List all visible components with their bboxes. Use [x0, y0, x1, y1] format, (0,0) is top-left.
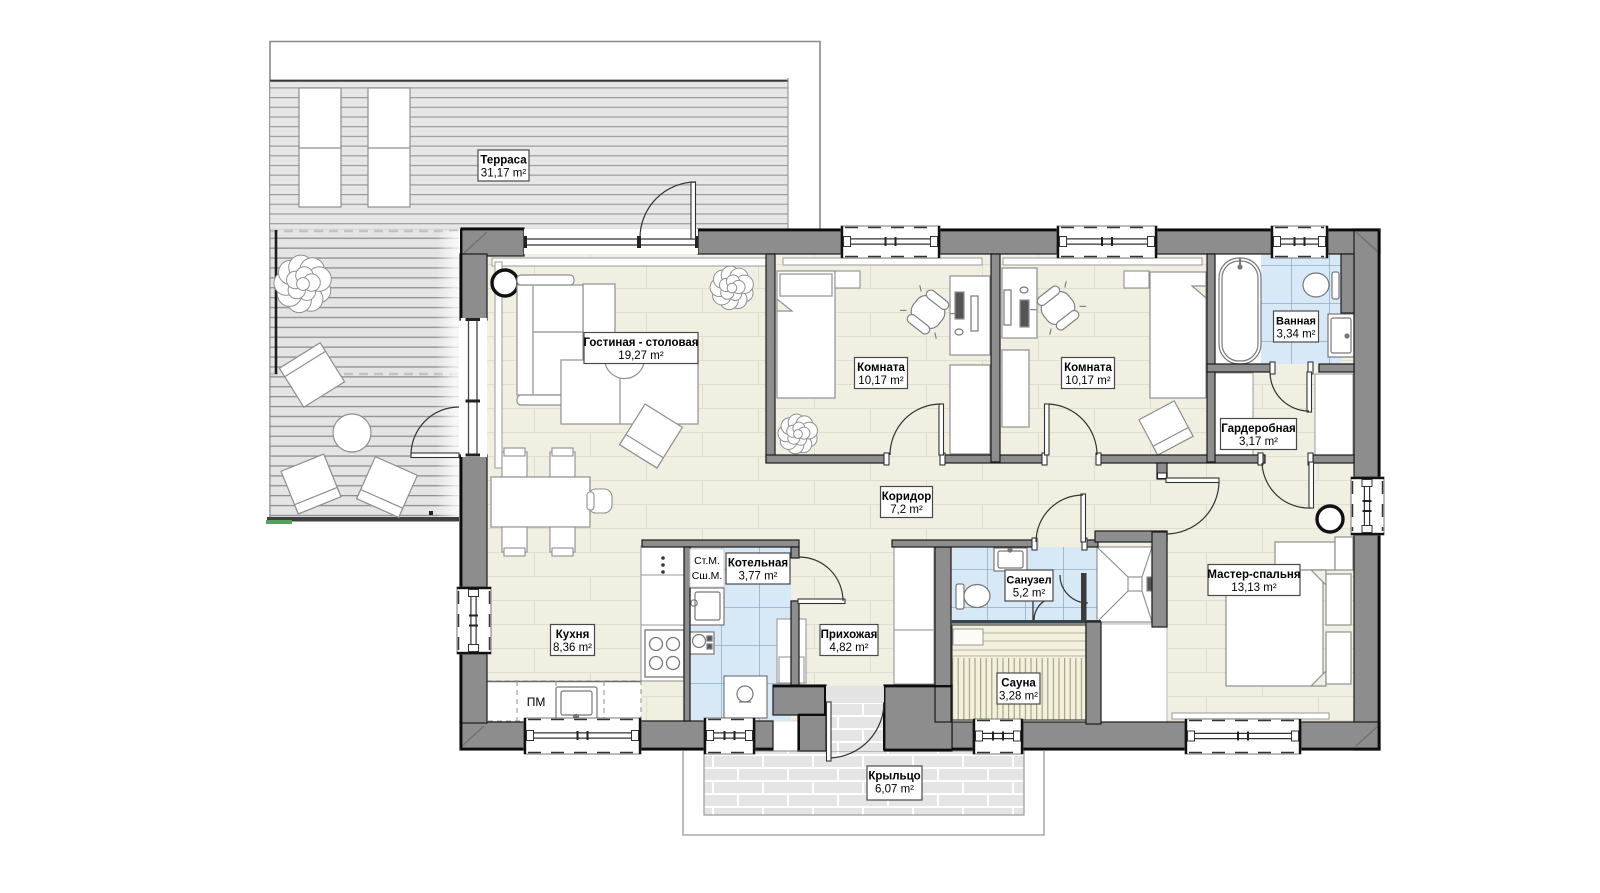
- svg-text:3,77 m²: 3,77 m²: [739, 571, 778, 583]
- svg-text:31,17 m²: 31,17 m²: [481, 168, 527, 180]
- svg-text:Гардеробная: Гардеробная: [1221, 423, 1295, 435]
- svg-text:Кухня: Кухня: [556, 629, 590, 641]
- svg-text:Сш.М.: Сш.М.: [692, 570, 723, 582]
- svg-text:19,27 m²: 19,27 m²: [618, 350, 664, 362]
- svg-text:4,82 m²: 4,82 m²: [830, 642, 869, 654]
- svg-text:13,13 m²: 13,13 m²: [1231, 582, 1277, 594]
- svg-text:Крыльцо: Крыльцо: [868, 771, 920, 783]
- svg-text:5,2 m²: 5,2 m²: [1013, 588, 1046, 600]
- svg-text:Гостиная - столовая: Гостиная - столовая: [583, 337, 698, 349]
- svg-text:6,07 m²: 6,07 m²: [875, 784, 914, 796]
- svg-text:3,34 m²: 3,34 m²: [1277, 329, 1316, 341]
- svg-text:10,17 m²: 10,17 m²: [858, 375, 904, 387]
- svg-text:8,36 m²: 8,36 m²: [553, 642, 592, 654]
- svg-text:Сауна: Сауна: [1001, 678, 1036, 690]
- svg-text:ПМ: ПМ: [527, 695, 546, 709]
- svg-text:Котельная: Котельная: [728, 558, 788, 570]
- svg-text:Коридор: Коридор: [882, 491, 932, 503]
- svg-text:3,17 m²: 3,17 m²: [1239, 436, 1278, 448]
- svg-text:Санузел: Санузел: [1006, 575, 1051, 587]
- svg-text:Ст.М.: Ст.М.: [694, 555, 720, 567]
- svg-text:Прихожая: Прихожая: [821, 629, 878, 641]
- svg-text:Мастер-спальня: Мастер-спальня: [1207, 569, 1300, 581]
- svg-text:Терраса: Терраса: [480, 155, 527, 167]
- svg-text:Комната: Комната: [857, 362, 905, 374]
- svg-text:Ванная: Ванная: [1276, 316, 1316, 328]
- svg-text:7,2 m²: 7,2 m²: [890, 504, 923, 516]
- svg-text:Комната: Комната: [1064, 362, 1112, 374]
- svg-text:3,28 m²: 3,28 m²: [999, 691, 1038, 703]
- svg-text:10,17 m²: 10,17 m²: [1065, 375, 1111, 387]
